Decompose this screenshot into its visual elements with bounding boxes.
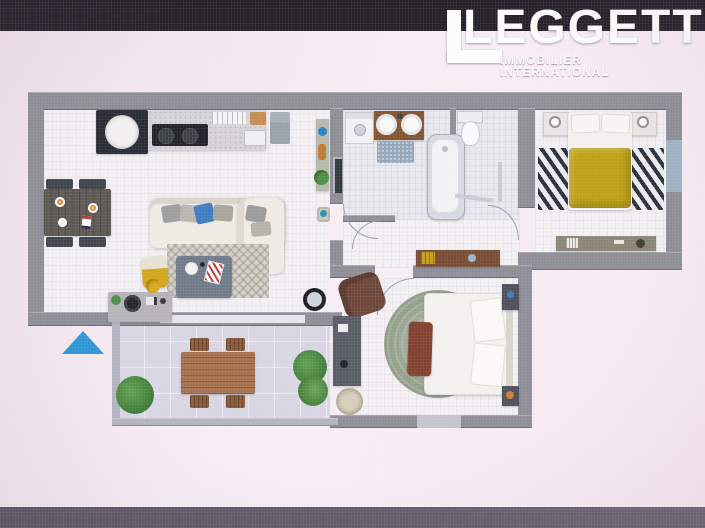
console-orange-item — [318, 144, 326, 160]
bathtub-drain — [442, 146, 448, 152]
fridge — [270, 112, 290, 144]
lamp-right — [637, 116, 649, 128]
kitchen-sink — [244, 130, 266, 146]
dining-chair-1 — [46, 179, 73, 189]
yellow-flowers — [146, 279, 160, 293]
hob-pan-2 — [182, 128, 198, 144]
washing-machine-door — [354, 124, 366, 136]
wall-bedroom2-right — [518, 265, 532, 428]
photo-bottom-bar — [0, 507, 705, 528]
console-blue-vase — [318, 127, 327, 136]
kitchen-appliance-drum — [105, 115, 139, 149]
desk-papers — [338, 324, 348, 332]
sideboard-radio — [146, 297, 157, 305]
dining-chair-4 — [79, 237, 106, 247]
dining-table — [44, 189, 111, 236]
hob-pan-1 — [158, 128, 174, 144]
bed1-duvet-yellow — [569, 148, 631, 208]
sofa-cushion-gray-2 — [212, 204, 233, 222]
wall-top — [28, 92, 682, 110]
hall-sideboard-decor — [468, 254, 476, 262]
bed2-pillow-1 — [470, 297, 507, 343]
lamp-left — [549, 116, 561, 128]
hall-tall-mirror — [333, 157, 342, 193]
rattan-pouf — [336, 388, 363, 415]
bed2-pillow-2 — [470, 342, 506, 387]
coffee-table-cup — [200, 262, 205, 267]
bed2-bench — [407, 322, 433, 377]
bedroom2-door-threshold — [417, 415, 461, 428]
vanity-mirror-dot — [397, 113, 403, 119]
living-window-band — [160, 315, 305, 323]
bed2-nightstand-bottom-lamp — [506, 391, 514, 399]
coffee-table-tray — [186, 263, 197, 274]
dining-chair-2 — [79, 179, 106, 189]
terrace-chair-3 — [190, 395, 209, 408]
bed1-pillow-2 — [601, 113, 631, 133]
terrace-table — [181, 352, 255, 394]
dining-chair-3 — [46, 237, 73, 247]
terrace-plant-right-b — [298, 376, 328, 406]
dining-plate-3 — [58, 218, 67, 227]
washbasin-1 — [376, 114, 397, 135]
bed1-pillow-1 — [571, 113, 601, 133]
terrace-chair-1 — [190, 338, 209, 351]
bed2-nightstand-top-item — [507, 291, 514, 298]
floorplan-photo: LEGGETT IMMOBILIER INTERNATIONAL — [0, 0, 705, 528]
stool-teal-item — [320, 210, 327, 217]
kitchen-jars — [212, 112, 246, 124]
console-plant — [314, 170, 329, 185]
toilet-bowl — [461, 121, 480, 146]
terrace-chair-2 — [226, 338, 245, 351]
dresser-decor-arrow — [614, 240, 624, 244]
bath-mat — [377, 141, 414, 163]
towel-rail-vertical — [498, 162, 502, 202]
blue-triangle-marker — [62, 331, 104, 354]
terrace-plant-left — [116, 376, 154, 414]
washbasin-2 — [401, 114, 422, 135]
wall-bath-bedroom1 — [518, 108, 535, 208]
logo-title: LEGGETT — [463, 4, 704, 52]
logo-subtitle: IMMOBILIER INTERNATIONAL — [500, 55, 696, 79]
wall-left — [28, 92, 44, 322]
dresser-plant-dot — [636, 239, 645, 248]
sideboard-knob — [160, 298, 166, 304]
wall-terrace-left — [112, 322, 120, 426]
turntable — [124, 295, 141, 312]
wall-bedroom1-bottom — [518, 252, 682, 270]
kitchen-cutting-board — [250, 112, 266, 125]
dining-plate-1 — [55, 197, 65, 207]
dining-menu-card — [81, 216, 91, 230]
bedroom1-window — [666, 140, 682, 192]
dining-plate-2 — [88, 203, 98, 213]
wall-terrace-bottom — [112, 418, 338, 426]
desk-lamp-dot — [340, 360, 348, 368]
hall-sideboard-books — [421, 252, 435, 264]
dresser-books — [566, 238, 578, 248]
round-black-mirror — [303, 288, 326, 311]
terrace-chair-4 — [226, 395, 245, 408]
sideboard-plant — [111, 295, 121, 305]
chaise-cushion-2 — [250, 221, 271, 237]
